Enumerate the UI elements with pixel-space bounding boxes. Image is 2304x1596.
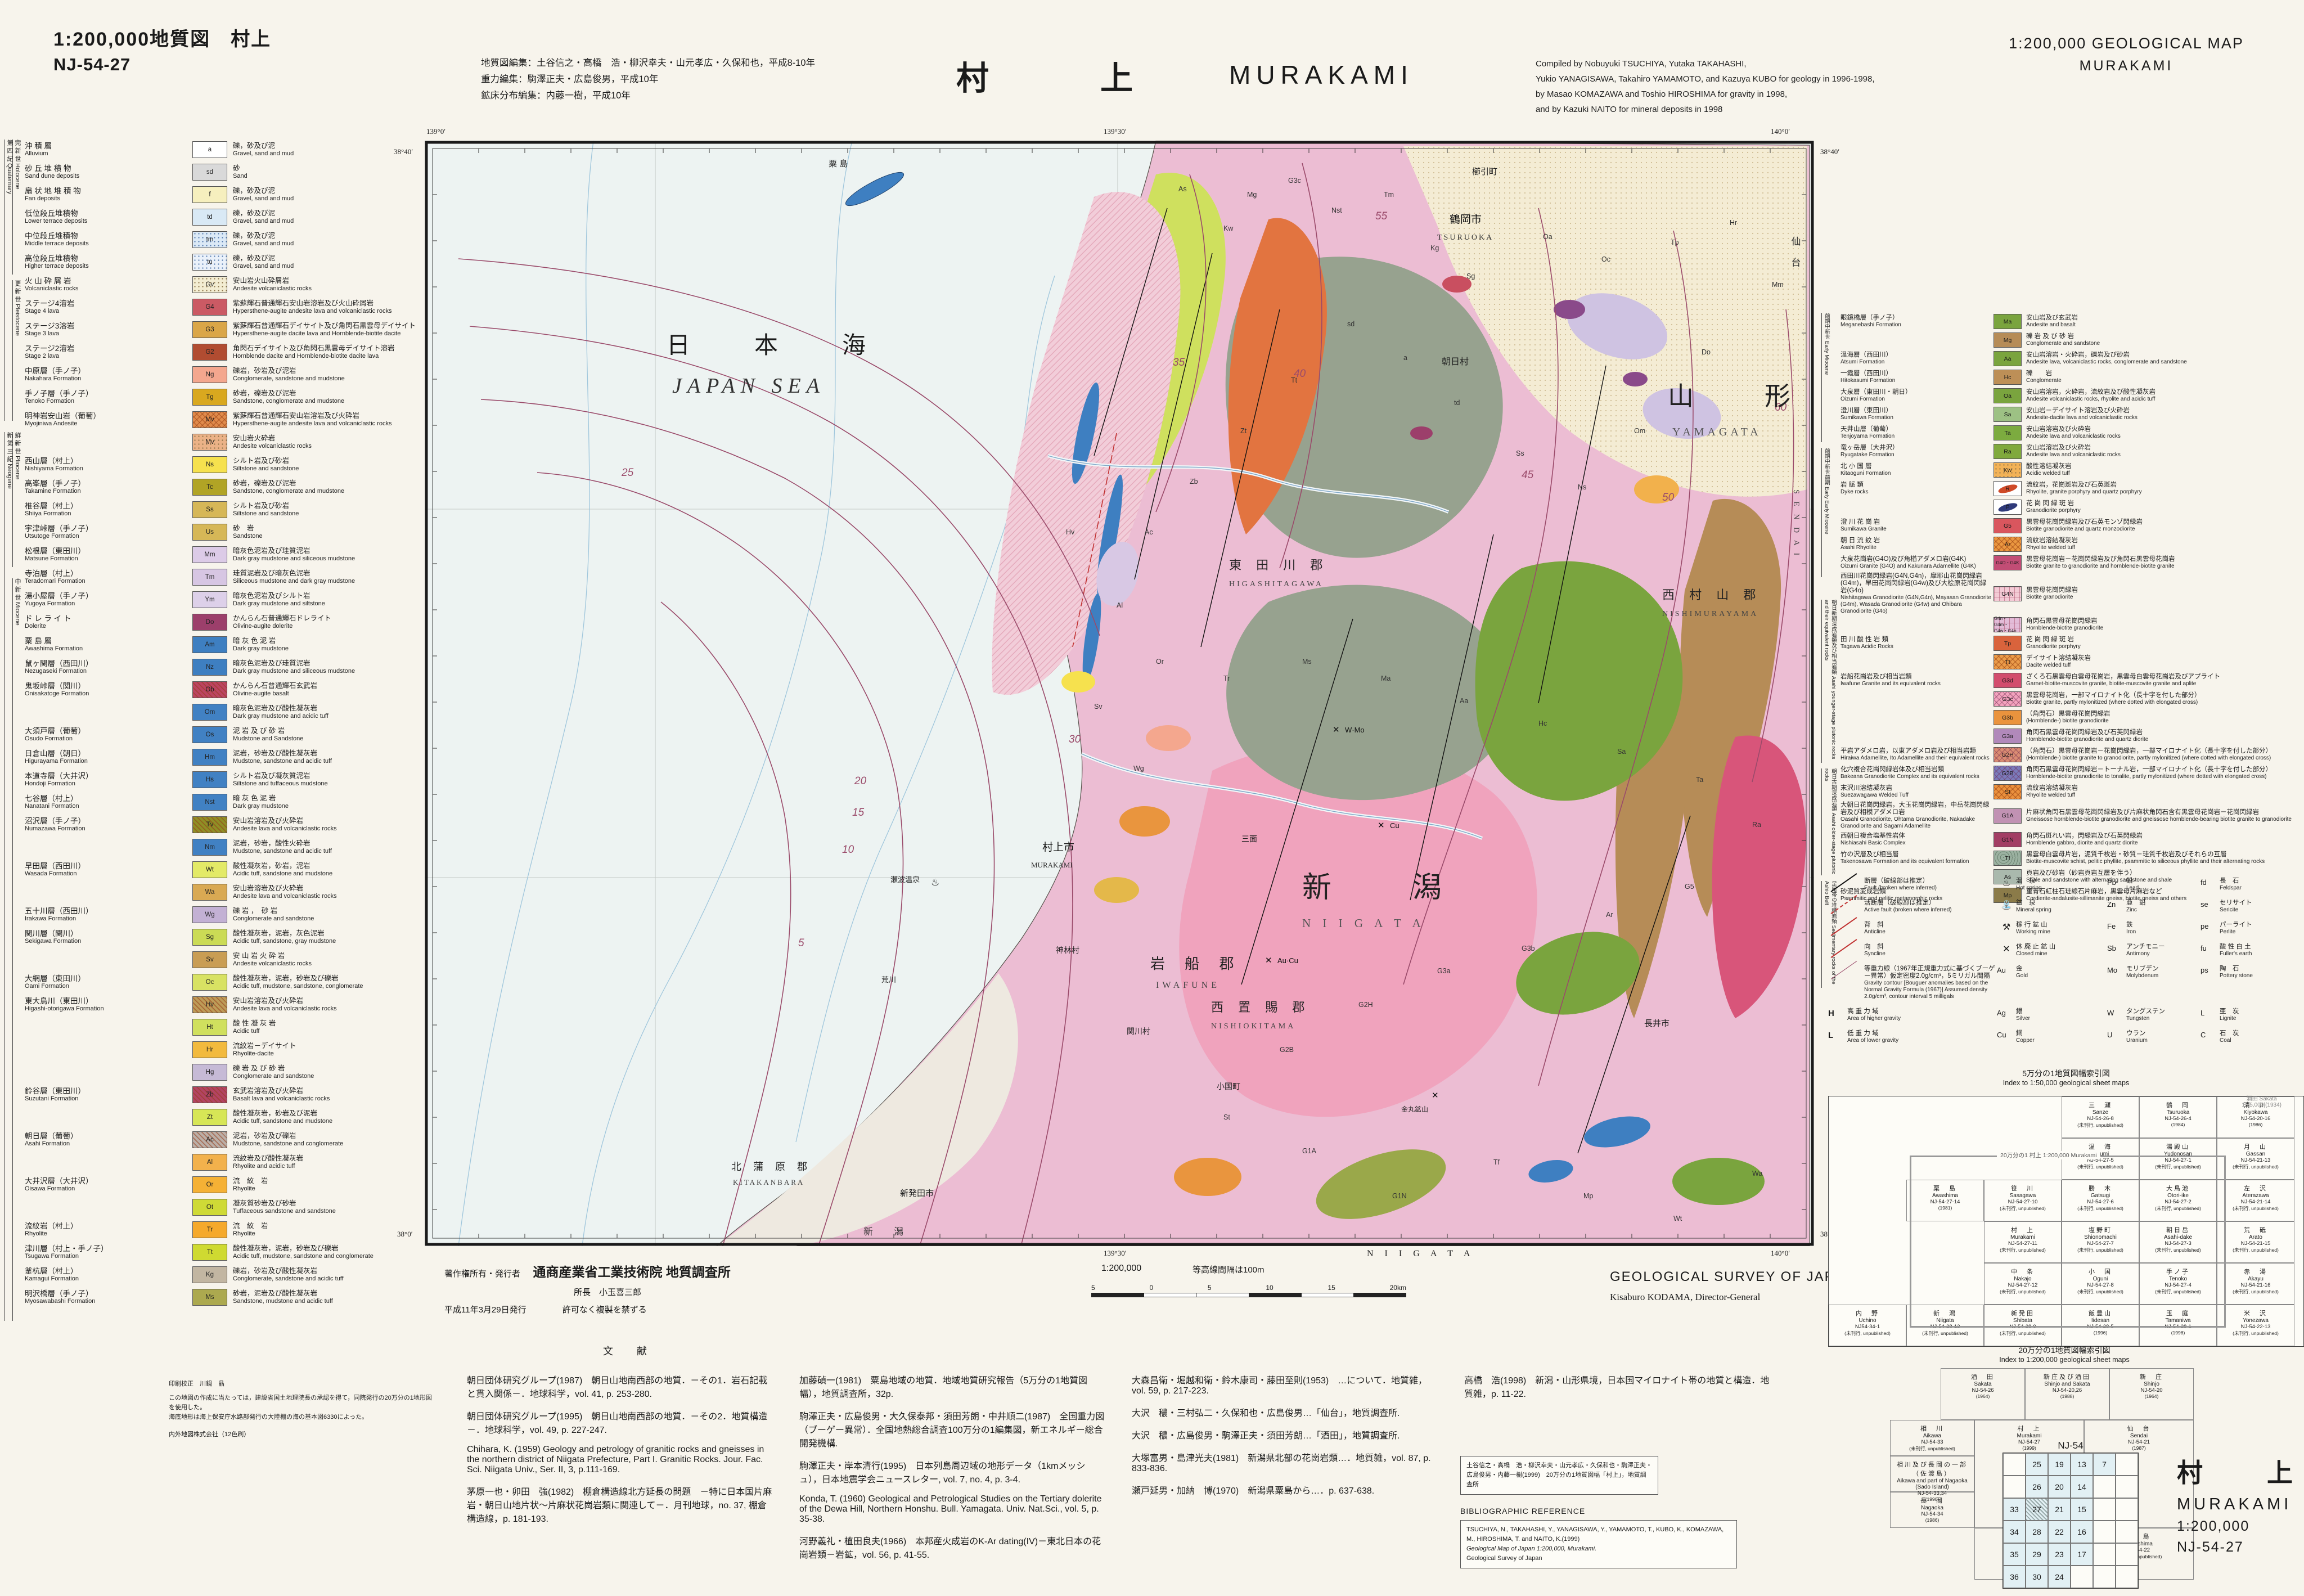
unit-code: Tt: [207, 1249, 213, 1256]
index-empty-cell: [1906, 1263, 1984, 1305]
legend-swatch: Tg: [192, 389, 227, 406]
legend-swatch: G3: [192, 321, 227, 338]
unit-code: Tc: [206, 484, 213, 491]
gravity-symbol: [1831, 961, 1857, 979]
unit-code: a: [208, 146, 211, 153]
lithology-desc: 角閃石黒雲母花崗閃緑岩－トーナル岩，一部マイロナイト化（長十字を付した部分）Ho…: [2022, 766, 2304, 780]
svg-text:Cu: Cu: [1390, 821, 1399, 830]
title-block-en: MURAKAMI: [2177, 1495, 2304, 1514]
symbol-cell: 活断層（破線部は推定）Active fault (broken where in…: [1828, 900, 1997, 914]
sheet-title-ja: 1:200,000地質図 村上: [53, 24, 271, 51]
nj54-title: NJ-54: [2002, 1440, 2139, 1451]
unit-code: Ns: [206, 461, 214, 468]
legend-swatch: G2: [192, 344, 227, 361]
unit-code: Om: [205, 709, 215, 716]
unit-code: sd: [206, 169, 213, 176]
symbol-label: 亜 鉛Zinc: [2126, 900, 2146, 914]
label-iwafune-ja: 岩 船 郡: [1150, 955, 1241, 972]
reference: Chihara, K. (1959) Geology and petrology…: [467, 1445, 775, 1475]
formation-name: 澄 川 花 崗 岩Sumikawa Granite: [1840, 519, 1993, 533]
era-label: 更 新 世 Pleistocene: [12, 280, 21, 421]
scale-bar: 505101520km: [1091, 1284, 1406, 1297]
unit-code: G3b: [2002, 714, 2013, 721]
reference: 大森昌衛・堀越和衛・鈴木康司・藤田至則(1953) …について．地質雑，vol.…: [1132, 1373, 1439, 1396]
element-code: C: [2200, 1030, 2220, 1039]
legend-row: 明神岩安山岩（葡萄）Myojiniwa AndesiteMv紫蘇輝石普通輝石安山…: [25, 408, 422, 431]
lithology-desc: 酸性凝灰岩，泥岩，灰色泥岩Acidic tuff, sandstone, gra…: [227, 929, 336, 945]
anticline-symbol: [1830, 917, 1857, 936]
title-block-code: NJ-54-27: [2177, 1539, 2304, 1555]
svg-text:5: 5: [798, 937, 804, 949]
legend-row: 岩 脈 類Dyke rocksR流紋岩，花崗斑岩及び石英斑岩Rhyolite, …: [1840, 480, 2304, 497]
map-unit-code: Hc: [1538, 720, 1547, 727]
era-label: 完 新 世 Holocene: [12, 140, 21, 275]
index-empty-cell: [1829, 1221, 1906, 1263]
symbol-label: 亜 炭Lignite: [2220, 1008, 2239, 1022]
index-empty-cell: [1829, 1180, 1906, 1221]
legend-row: Zt酸性凝灰岩，砂岩及び泥岩Acidic tuff, sandstone and…: [25, 1106, 422, 1129]
index-sheet-cell: 酒 田SakataNJ-54-26(1964): [1941, 1368, 2025, 1420]
map-title-en: MURAKAMI: [1229, 60, 1414, 90]
symbol-label: 等重力線（1967年正規重力式に基づくブーゲー異常）仮定密度2.0g/cm³，5…: [1864, 965, 1997, 1000]
group-label: 朝日古期深成岩類 Asahi older-stage plutonic rock…: [1821, 768, 1837, 875]
label-sendai-ja: 仙 台: [1790, 236, 1801, 272]
legend-row: 扇 状 地 堆 積 物Fan depositsf礫，砂及び泥Gravel, sa…: [25, 183, 422, 206]
element-code: U: [2107, 1030, 2126, 1039]
formation-name: 岩 脈 類Dyke rocks: [1840, 482, 1993, 496]
legend-swatch: G2H: [1993, 747, 2022, 762]
lithology-desc: 酸性溶結凝灰岩Acidic welded tuff: [2022, 463, 2304, 477]
formation-name: 寺泊層（村上）Teradomari Formation: [25, 569, 192, 585]
svg-text:35: 35: [1173, 357, 1185, 368]
reference: 駒澤正夫・岸本清行(1995) 日本列島周辺域の地形データ（1kmメッシュ），日…: [799, 1458, 1107, 1485]
lithology-desc: 黒雲母花崗岩－花崗閃緑岩及び角閃石黒雲母花崗岩Biotite granite t…: [2022, 556, 2304, 570]
legend-swatch: Zt: [192, 1109, 227, 1126]
legend-swatch: Am: [192, 636, 227, 653]
symbol-cell: H高 重 力 域Area of higher gravity: [1828, 1008, 1997, 1022]
index-sheet-cell: 朝日岳Asahi-dakeNJ-54-27-3(未刊行, unpublished…: [2139, 1221, 2217, 1263]
legend-swatch: Mv: [192, 434, 227, 451]
legend-row: 沼沢層（手ノ子）Numazawa FormationTv安山岩溶岩及び火砕岩An…: [25, 813, 422, 836]
unit-code: Tp: [2004, 640, 2011, 647]
formation-name: 眼鏡橋層（手ノ子）Meganebashi Formation: [1840, 314, 1993, 329]
nj54-cell: 17: [2071, 1543, 2093, 1566]
legend-row: 関川層（関川）Sekigawa FormationSg酸性凝灰岩，泥岩，灰色泥岩…: [25, 926, 422, 948]
bibliography-column: 加藤碵一(1981) 粟島地域の地質．地域地質研究報告（5万分の1地質図幅），地…: [799, 1364, 1107, 1570]
legend-swatch: Mv: [192, 411, 227, 428]
legend-row: 西田川花崗閃緑岩(G4N,G4n)，摩耶山花崗閃緑岩(G4m)，早田花崗閃緑岩(…: [1840, 573, 2304, 615]
legend-swatch: Tf: [1993, 851, 2022, 866]
reference: 大沢 穠・広島俊男・駒澤正夫・須田芳朗…「酒田」，地質調査所.: [1132, 1428, 1439, 1441]
map-unit-code: Wt: [1673, 1215, 1682, 1222]
syncline-symbol: [1830, 939, 1857, 958]
unit-code: Hm: [205, 754, 215, 761]
lithology-desc: 角閃石デイサイト及び角閃石黒雲母デイサイト溶岩Hornblende dacite…: [227, 344, 395, 360]
index-sheet-cell: 相 川AikawaNJ-54-33(未刊行, unpublished): [1890, 1420, 1974, 1456]
unit-code: Wt: [206, 866, 214, 873]
label-yamagata-ja: 山 形: [1668, 381, 1813, 411]
legend-swatch: Ng: [192, 366, 227, 383]
index-sheet-cell: 大鳥池Otori-ikeNJ-54-27-2(未刊行, unpublished): [2139, 1180, 2217, 1221]
legend-row: 流紋岩（村上）RhyoliteTr流 紋 岩Rhyolite: [25, 1219, 422, 1241]
formation-name: 明沢橋層（手ノ子）Myosawabashi Formation: [25, 1289, 192, 1305]
legend-row: 明沢橋層（手ノ子）Myosawabashi FormationMs砂岩，泥岩及び…: [25, 1286, 422, 1309]
unit-code: G4N: [2001, 591, 2014, 597]
legend-row: 松根層（東田川）Matsune FormationMm暗灰色泥岩及び珪質泥岩Da…: [25, 543, 422, 566]
formation-name: 末沢川溶結凝灰岩Suezawagawa Welded Tuff: [1840, 785, 1993, 799]
legend-swatch: Os: [192, 726, 227, 743]
map-unit-code: Mg: [1247, 191, 1257, 199]
label-niigata-en: N I I G A T A: [1302, 916, 1425, 930]
label-sendai-en: S E N D A I: [1792, 489, 1801, 558]
index-sheet-cell: 新庄及び酒田Shinjo and SakataNJ-54-20,26(1988): [2025, 1368, 2109, 1420]
svg-text:✕: ✕: [1432, 1091, 1439, 1100]
legend-swatch: Mg: [1993, 332, 2022, 348]
formation-name: 沼沢層（手ノ子）Numazawa Formation: [25, 817, 192, 833]
lithology-desc: 紫蘇輝石普通輝石デイサイト及び角閃石黒雲母デイサイトHypersthene-au…: [227, 322, 416, 338]
lithology-desc: 安山岩火砕岩Andesite volcaniclastic rocks: [227, 434, 312, 450]
unit-code: Tr: [207, 1226, 213, 1233]
unit-code: Oa: [2004, 393, 2011, 399]
legend-row: 低位段丘堆積物Lower terrace depositstd礫，砂及び泥Gra…: [25, 206, 422, 228]
unit-code: Mp: [2004, 892, 2012, 899]
nj54-cell: 25: [2026, 1453, 2048, 1476]
map-unit-code: Wg: [1133, 765, 1144, 772]
legend-row: 田 川 酸 性 岩 類Tagawa Acidic RocksTp花 崗 閃 緑 …: [1840, 635, 2304, 652]
label-japan-sea-en: JAPAN SEA: [672, 374, 825, 398]
nj54-cell: 16: [2071, 1521, 2093, 1543]
legend-swatch: Wt: [192, 861, 227, 878]
formation-name: 五十川層（西田川）Irakawa Formation: [25, 907, 192, 923]
legend-row: 西朝日複合塩基性岩体Nishiasahi Basic ComplexG1N角閃石…: [1840, 831, 2304, 848]
map-unit-code: G3a: [1437, 967, 1451, 975]
publisher-issue: 平成11年3月29日発行: [444, 1305, 526, 1315]
legend-swatch: Tp: [1993, 636, 2022, 651]
legend-row: 眼鏡橋層（手ノ子）Meganebashi FormationMa安山岩及び玄武岩…: [1840, 313, 2304, 330]
legend-row: 西山層（村上）Nishiyama FormationNsシルト岩及び砂岩Silt…: [25, 453, 422, 476]
symbol-cell: WタングステンTungsten: [2107, 1008, 2200, 1022]
lithology-desc: 流紋岩，花崗斑岩及び石英斑岩Rhyolite, granite porphyry…: [2022, 482, 2304, 496]
symbol-label: 陶 石Pottery stone: [2220, 965, 2253, 979]
lithology-desc: （角閃石）黒雲母花崗閃緑岩(Hornblende-) biotite grano…: [2022, 711, 2304, 725]
unit-code: G3: [205, 326, 214, 333]
legend-row: Al流紋岩及び酸性凝灰岩Rhyolite and acidic tuff: [25, 1151, 422, 1174]
legend-row: ステージ4溶岩Stage 4 lavaG4紫蘇輝石普通輝石安山岩溶岩及び火山砕屑…: [25, 296, 422, 318]
symbol-label: タングステンTungsten: [2126, 1008, 2165, 1022]
legend-row: 岩船花崗岩及び相当岩類Iwafune Granite and its equiv…: [1840, 672, 2304, 689]
symbol-cell: UウランUranium: [2107, 1030, 2200, 1044]
symbol-cell: ⛲鉱 泉Mineral spring: [1997, 900, 2107, 914]
nj54-empty-cell: [2093, 1566, 2116, 1588]
legend-row: 末沢川溶結凝灰岩Suezawagawa Welded TuffSt流紋岩溶結凝灰…: [1840, 783, 2304, 801]
lithology-desc: 流紋岩溶結凝灰岩Rhyolite welded tuff: [2022, 785, 2304, 799]
lithology-desc: 酸性凝灰岩，泥岩，砂岩及び礫岩Acidic tuff, mudstone, sa…: [227, 1244, 373, 1260]
sheet-id-block: 1:200,000地質図 村上 NJ-54-27: [53, 24, 271, 75]
lithology-desc: 礫 岩 及 び 砂 岩Conglomerate and sandstone: [2022, 333, 2304, 347]
symbol-cell: ⚒稼 行 鉱 山Working mine: [1997, 921, 2107, 936]
legend-swatch: Om: [192, 704, 227, 721]
legend-row: 沖 積 層Alluviuma礫，砂及び泥Gravel, sand and mud: [25, 138, 422, 161]
unit-code: Ma: [2004, 318, 2012, 325]
legend-swatch: Oc: [192, 974, 227, 991]
unit-code: Sa: [2004, 411, 2011, 418]
map-unit-code: Sg: [1466, 272, 1475, 280]
index-sheet-cell: 月 山GassanNJ-54-21-13(未刊行, unpublished): [2217, 1138, 2294, 1180]
legend-row: 東大鳥川（東田川）Higashi-otorigawa FormationHv安山…: [25, 993, 422, 1016]
lithology-desc: 暗 灰 色 泥 岩Dark gray mudstone: [227, 637, 289, 653]
unit-code: Mg: [2004, 337, 2012, 344]
legend-row: 朝 日 流 紋 岩Asahi RhyoliteAr流紋岩溶結凝灰岩Rhyolit…: [1840, 536, 2304, 553]
map-unit-code: Nst: [1331, 206, 1342, 214]
legend-row: 天井山層（葡萄）Tenjoyama FormationTa安山岩溶岩及び火砕岩A…: [1840, 424, 2304, 442]
symbol-cell: 背 斜Anticline: [1828, 921, 1997, 936]
legend-swatch: Aa: [1993, 351, 2022, 366]
unit-code: Mm: [204, 551, 215, 558]
legend-row: 椎谷層（村上）Shiiya FormationSsシルト岩及び砂岩Siltsto…: [25, 498, 422, 521]
legend-row: 五十川層（西田川）Irakawa FormationWg礫 岩 ， 砂 岩Con…: [25, 903, 422, 926]
legend-row: 化穴複合花崗閃緑岩体及び相当岩類Bakeana Granodiorite Com…: [1840, 765, 2304, 782]
legend-row: ステージ2溶岩Stage 2 lavaG2角閃石デイサイト及び角閃石黒雲母デイサ…: [25, 341, 422, 363]
reference: Konda, T. (1960) Geological and Petrolog…: [799, 1494, 1107, 1525]
coord-bottom-mid: 139°30′: [1104, 1249, 1127, 1258]
reference: 駒澤正夫・広島俊男・大久保泰邦・須田芳朗・中井順二(1987) 全国重力図（ブー…: [799, 1409, 1107, 1449]
unit-code: Al: [207, 1159, 213, 1166]
unit-code: G2: [205, 349, 214, 356]
unit-code: Or: [206, 1181, 214, 1188]
element-code: L: [2200, 1008, 2220, 1017]
map-unit-code: Kg: [1430, 244, 1439, 252]
svg-text:20: 20: [854, 775, 867, 787]
legend-swatch: Ot: [192, 1199, 227, 1216]
svg-text:✕: ✕: [1378, 821, 1385, 830]
label-sanmen: 三面: [1241, 834, 1257, 843]
legend-swatch: Hs: [192, 771, 227, 788]
lithology-desc: 礫，砂及び泥Gravel, sand and mud: [227, 209, 294, 225]
lithology-desc: 角閃石斑れい岩，閃緑岩及び石英閃緑岩Hornblende gabbro, dio…: [2022, 833, 2304, 847]
index-empty-cell: [1829, 1263, 1906, 1305]
unit-code: Tv: [206, 821, 214, 828]
era-strip: 第 四 紀 Quaternary完 新 世 Holocene更 新 世 Plei…: [4, 140, 21, 1332]
label-kanbayashi: 神林村: [1056, 946, 1079, 955]
nj54-block: NJ-54 2519137262014332721153428221635292…: [2002, 1440, 2139, 1589]
formation-name: 大須戸層（葡萄）Osudo Formation: [25, 727, 192, 743]
legend-row: 大朝日花崗閃緑岩，大玉花崗閃緑岩，中岳花崗閃緑岩及び相模アダメロ岩Oasahi …: [1840, 802, 2304, 830]
scale-tick: 10: [1266, 1284, 1273, 1292]
nj54-empty-cell: [2003, 1476, 2026, 1498]
symbol-row: 活断層（破線部は推定）Active fault (broken where in…: [1828, 900, 2304, 914]
nj54-empty-cell: [2116, 1521, 2138, 1543]
unit-code: Tm: [205, 574, 215, 581]
index-sheet-cell: 塩野町ShionomachiNJ-54-27-7(未刊行, unpublishe…: [2062, 1221, 2139, 1263]
nj54-cell: 24: [2048, 1566, 2071, 1588]
legend-swatch: Us: [192, 524, 227, 541]
unit-code: Nz: [206, 664, 214, 671]
nj54-empty-cell: [2093, 1476, 2116, 1498]
lithology-desc: 礫岩，砂岩及び酸性凝灰岩Conglomerate, sandstone and …: [227, 1267, 344, 1283]
title-block-scale: 1:200,000: [2177, 1518, 2304, 1535]
lithology-desc: 片麻状角閃石黒雲母花崗閃緑岩及び片麻状角閃石含有黒雲母花崗岩－花崗閃緑岩Gnei…: [2022, 809, 2304, 823]
unit-code: Oc: [206, 979, 214, 986]
index-sheet-cell: 手ノ子TenokoNJ-54-27-4(未刊行, unpublished): [2139, 1263, 2217, 1305]
nj54-cell: 29: [2026, 1543, 2048, 1566]
index-sheet-cell: 湯殿山YudonosanNJ-54-27-1(未刊行, unpublished): [2139, 1138, 2217, 1180]
unit-code: Gv: [206, 281, 214, 288]
map-unit-code: Tr: [1223, 675, 1230, 682]
legend-row: Ttデイサイト溶結凝灰岩Dacite welded tuff: [1840, 653, 2304, 671]
map-unit-code: Tf: [1493, 1158, 1500, 1166]
lithology-desc: 安山岩溶岩及び火砕岩Andesite lava and volcaniclast…: [227, 884, 337, 900]
formation-name: 竜ヶ岳層（大井沢）Ryugatake Formation: [1840, 444, 1993, 458]
label-kushibiki: 櫛引町: [1472, 167, 1497, 177]
lithology-desc: 泥岩，砂岩及び礫岩Mudstone, sandstone and conglom…: [227, 1132, 343, 1148]
legend-row: 本道寺層（大井沢）Hondoji FormationHsシルト岩及び凝灰質泥岩S…: [25, 768, 422, 791]
credits-en: Compiled by Nobuyuki TSUCHIYA, Yutaka TA…: [1536, 56, 1875, 117]
index-sheet-cell: 赤 湯AkayuNJ-54-21-16(未刊行, unpublished): [2217, 1263, 2294, 1305]
map-unit-code: Do: [1702, 348, 1711, 356]
unit-code: Tf: [2005, 855, 2010, 862]
element-code: Mo: [2107, 965, 2126, 974]
element-code: Sb: [2107, 943, 2126, 952]
map-unit-code: sd: [1347, 320, 1354, 328]
legend-swatch: Ms: [192, 1289, 227, 1306]
map-unit-code: Zt: [1240, 427, 1247, 435]
lithology-desc: 暗灰色泥岩及び珪質泥岩Dark gray mudstone and silice…: [227, 547, 355, 563]
symbol-label: 活断層（破線部は推定）Active fault (broken where in…: [1864, 900, 1952, 914]
publisher-block: 著作権所有・発行者 通商産業省工業技術院 地質調査所 所長 小玉喜三郎 平成11…: [444, 1261, 731, 1315]
symbol-cell: MoモリブデンMolybdenum: [2107, 965, 2200, 1000]
legend-row: 鈴谷層（東田川）Suzutani FormationZb玄武岩溶岩及び火砕岩Ba…: [25, 1084, 422, 1106]
unit-code: Sv: [206, 956, 213, 963]
symbol-row: H高 重 力 域Area of higher gravityAg銀SilverW…: [1828, 1008, 2304, 1022]
publisher-nocopy: 許可なく複製を禁ずる: [562, 1305, 647, 1315]
element-code: Pb: [2107, 878, 2126, 887]
map-unit-code: Al: [1117, 601, 1123, 609]
legend-swatch: Ar: [1993, 537, 2022, 552]
legend-swatch: Oa: [1993, 388, 2022, 403]
legend-row: Om暗灰色泥岩及び酸性凝灰岩Dark gray mudstone and aci…: [25, 701, 422, 723]
legend-row: Mv安山岩火砕岩Andesite volcaniclastic rocks: [25, 431, 422, 453]
label-kanamaru: 金丸鉱山: [1401, 1105, 1428, 1113]
lithology-desc: （角閃石）黒雲母花崗岩－花崗閃緑岩，一部マイロナイト化（長十字を付した部分）(H…: [2022, 748, 2304, 762]
symbol-label: 石 炭Coal: [2220, 1030, 2239, 1044]
legend-row: 高位段丘堆積物Higher terrace depositstu礫，砂及び泥Gr…: [25, 251, 422, 273]
formation-name: 湯小屋層（手ノ子）Yugoya Formation: [25, 592, 192, 608]
legend-swatch: G5: [1993, 518, 2022, 533]
unit-code: Ra: [2004, 448, 2011, 455]
symbol-cell: ✕休 廃 止 鉱 山Closed mine: [1997, 943, 2107, 957]
unit-code: Ob: [205, 686, 214, 693]
unit-code: Mv: [205, 439, 214, 446]
unit-code: G3a: [2002, 733, 2013, 740]
formation-name: 澄川層（東田川）Sumikawa Formation: [1840, 407, 1993, 421]
formation-name: 竹の沢層及び相当層Takenosawa Formation and its eq…: [1840, 851, 1993, 865]
formation-name: ステージ2溶岩Stage 2 lava: [25, 344, 192, 360]
nj54-cell: 33: [2003, 1498, 2026, 1521]
legend-row: Wa安山岩溶岩及び火砕岩Andesite lava and volcanicla…: [25, 881, 422, 903]
coord-left-top: 38°40′: [394, 147, 413, 156]
nj54-cell: 19: [2048, 1453, 2071, 1476]
unit-code: Kg: [206, 1271, 214, 1278]
coord-left-bottom: 38°0′: [397, 1230, 413, 1239]
legend-swatch: sd: [192, 164, 227, 181]
unit-code: G1N: [2001, 837, 2014, 843]
symbol-cell: L低 重 力 域Area of lower gravity: [1828, 1030, 1997, 1044]
legend-row: Hg礫 岩 及 び 砂 岩Conglomerate and sandstone: [25, 1061, 422, 1084]
svg-text:15: 15: [852, 807, 865, 819]
legend-swatch: Hg: [192, 1064, 227, 1081]
reference: 大塚富男・島津光夫(1981) 新潟県北部の花崗岩類…．地質雑，vol. 87,…: [1132, 1450, 1439, 1474]
lithology-desc: 安山岩溶岩及び火砕岩Andesite lava and volcaniclast…: [2022, 444, 2304, 458]
coord-top-mid: 139°30′: [1104, 127, 1127, 136]
symbol-cell: fu酸 性 白 土Fuller's earth: [2200, 943, 2302, 957]
symbol-label: モリブデンMolybdenum: [2126, 965, 2159, 979]
legend-row: Ht酸 性 凝 灰 岩Acidic tuff: [25, 1016, 422, 1038]
unit-code: Mv: [205, 416, 214, 423]
label-iwafune-en: IWAFUNE: [1156, 981, 1220, 990]
map-frame: 5 10 15 20 25 30 35 40 45 50 55 60 ✕Au·C…: [425, 141, 1814, 1246]
legend-row: 大泉花崗岩(G4O)及び角楢アダメロ岩(G4K)Oizumi Granite (…: [1840, 554, 2304, 572]
lithology-desc: ざくろ石黒雲母白雲母花崗岩，黒雲母白雲母花崗岩及びアプライトGarnet-bio…: [2022, 673, 2304, 687]
symbol-label: 鉱 泉Mineral spring: [2016, 900, 2051, 914]
lithology-desc: 角閃石黒雲母花崗閃緑岩Hornblende-biotite granodiori…: [2022, 618, 2304, 632]
label-arakawa: 荒川: [881, 975, 896, 984]
symbol-label: 稼 行 鉱 山Working mine: [2016, 921, 2050, 936]
lithology-desc: 流紋岩及び酸性凝灰岩Rhyolite and acidic tuff: [227, 1154, 303, 1170]
unit-code: Sg: [206, 934, 214, 941]
legend-row: 鼠ヶ関層（西田川）Nezugaseki FormationNz暗灰色泥岩及び珪質…: [25, 656, 422, 678]
nj54-cell: 13: [2071, 1453, 2093, 1476]
lithology-desc: 暗灰色泥岩及び珪質泥岩Dark gray mudstone and silice…: [227, 659, 355, 675]
legend-swatch: Tt: [1993, 654, 2022, 669]
symbol-label: 長 石Feldspar: [2220, 878, 2242, 892]
nj54-cell: 20: [2048, 1476, 2071, 1498]
symbol-row: L低 重 力 域Area of lower gravityCu銅CopperUウ…: [1828, 1030, 2304, 1044]
symbol-cell: ♨温 泉Hot spring: [1997, 878, 2107, 892]
symbol-label: 断層（破線部は推定）Fault (broken where inferred): [1864, 878, 1937, 892]
lithology-desc: 暗 灰 色 泥 岩Dark gray mudstone: [227, 794, 289, 810]
map-unit-code: Ar: [1606, 911, 1613, 919]
legend-swatch: G2B: [1993, 766, 2022, 781]
scale-tick: 5: [1208, 1284, 1212, 1292]
element-code: ps: [2200, 965, 2220, 974]
lithology-desc: 流紋岩－デイサイトRhyolite-dacite: [227, 1042, 296, 1058]
formation-name: 手ノ子層（手ノ子）Tenoko Formation: [25, 389, 192, 405]
unit-code: Wg: [205, 911, 214, 918]
lithology-desc: 黒雲母白雲母片岩，泥質千枚岩・砂質－珪質千枚岩及びそれらの互層Biotite-m…: [2022, 851, 2304, 865]
formation-name: 流紋岩（村上）Rhyolite: [25, 1222, 192, 1238]
legend-swatch: G4O・G4K: [1993, 555, 2022, 570]
unit-code: P: [2005, 504, 2009, 511]
unit-code: f: [209, 191, 210, 198]
legend-swatch: R: [1993, 481, 2022, 496]
symbol-cell: 向 斜Syncline: [1828, 943, 1997, 957]
nj54-cell: 34: [2003, 1521, 2026, 1543]
legend-row: 津川層（村上・手ノ子）Tsugawa FormationTt酸性凝灰岩，泥岩，砂…: [25, 1241, 422, 1264]
element-code: Fe: [2107, 921, 2126, 930]
index-sheet-cell: 左 沢AterazawaNJ-54-21-14(未刊行, unpublished…: [2217, 1180, 2294, 1221]
unit-code: Ss: [206, 506, 213, 513]
lithology-desc: 暗灰色泥岩及び酸性凝灰岩Dark gray mudstone and acidi…: [227, 704, 328, 720]
symbol-label: 鉛Lead: [2126, 878, 2139, 892]
map-unit-code: Mm: [1772, 281, 1784, 289]
lithology-desc: 礫岩，砂岩及び泥岩Conglomerate, sandstone and mud…: [227, 367, 345, 383]
index-sheet-cell: 勝 木GatsugiNJ-54-27-6(未刊行, unpublished): [2062, 1180, 2139, 1221]
unit-code: Ym: [205, 596, 214, 603]
bibliography-column: 朝日団体研究グループ(1987) 朝日山地南西部の地質．－その1．岩石記載と貫入…: [467, 1364, 775, 1570]
legend-swatch: Tm: [192, 569, 227, 586]
legend-row: 平岩アダメロ岩，以東アダメロ岩及び相当岩類Hiraiwa Adamellite,…: [1840, 746, 2304, 763]
lithology-desc: 流 紋 岩Rhyolite: [227, 1222, 268, 1238]
